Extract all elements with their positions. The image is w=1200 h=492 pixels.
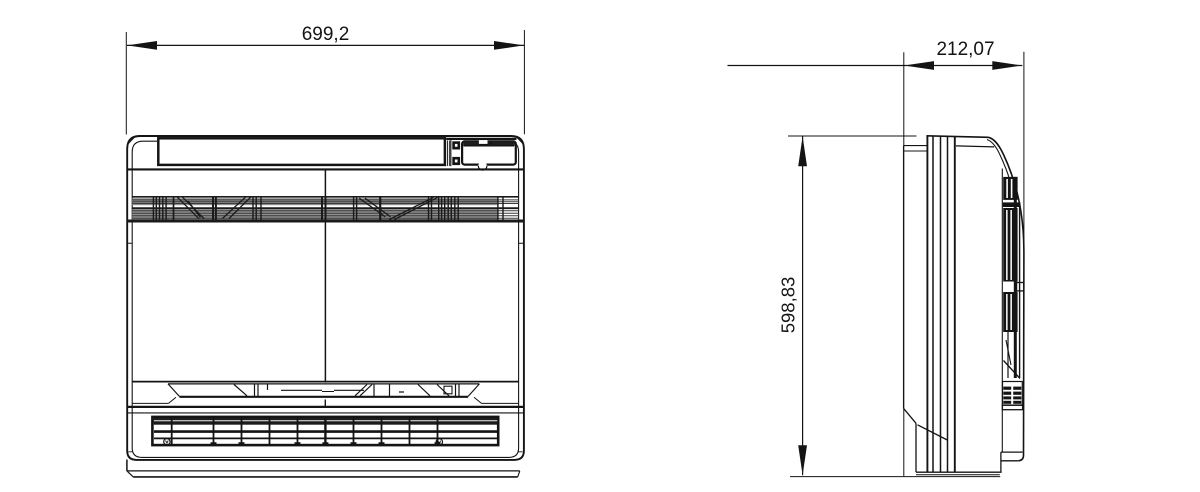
svg-text:212,07: 212,07 xyxy=(936,39,994,60)
svg-text:598,83: 598,83 xyxy=(778,277,799,334)
svg-text:699,2: 699,2 xyxy=(302,24,350,45)
